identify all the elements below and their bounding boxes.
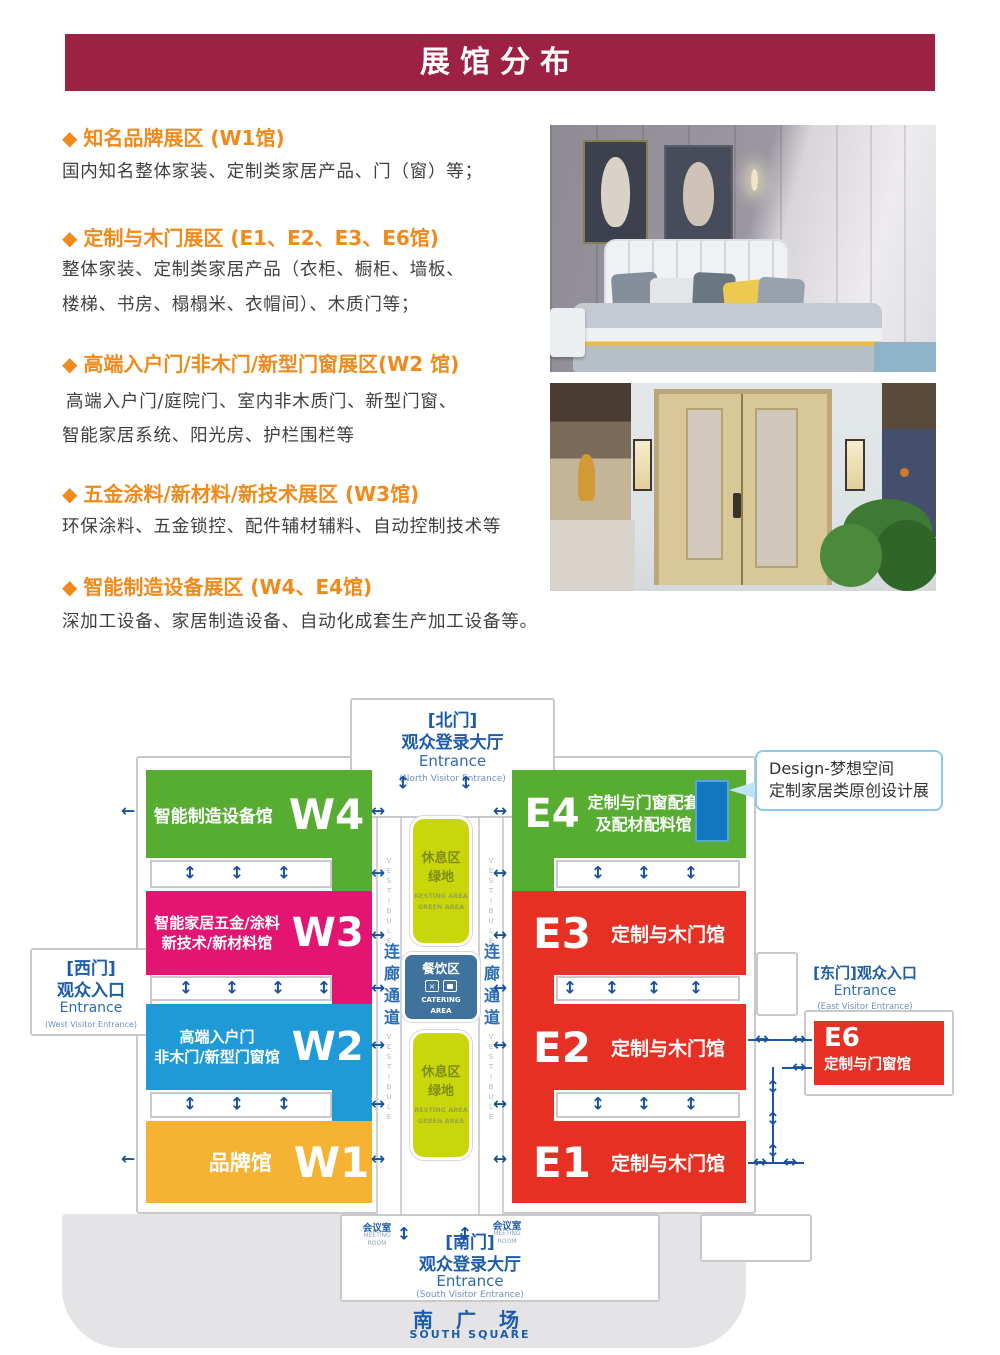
- flow-arrow-icon: ↔: [493, 866, 507, 883]
- hall-e2: E2 定制与木门馆: [512, 1004, 746, 1090]
- south-square-label-en: SOUTH SQUARE: [340, 1328, 600, 1341]
- south-entrance-sub: (South Visitor Entrance): [340, 1290, 600, 1300]
- catering-label-en: AREA: [430, 1006, 451, 1017]
- section-body-line: 整体家装、定制类家居产品（衣柜、橱柜、墙板、: [62, 256, 465, 281]
- west-entrance-label: Entrance: [30, 1000, 152, 1016]
- flow-arrow-icon: ↔: [371, 1152, 385, 1169]
- display-niche: [550, 383, 631, 520]
- flow-arrow-icon: ↕: [637, 1097, 651, 1114]
- section-body-line: 楼梯、书房、榻榻米、衣帽间）、木质门等；: [62, 291, 419, 316]
- vestibule-label: VESTIBULE: [385, 1033, 393, 1123]
- flow-arrow-icon: ↕: [183, 866, 197, 883]
- flow-arrow-icon: ↔: [792, 1032, 806, 1049]
- gold-sculpture: [578, 454, 596, 501]
- hall-name-line: 非木门/新型门窗馆: [154, 1048, 279, 1066]
- floor-plan-map: [北门] 观众登录大厅 Entrance (North Visitor Entr…: [0, 690, 1000, 1355]
- flow-arrow-icon: ↔: [371, 866, 385, 883]
- south-entrance-label: Entrance: [340, 1272, 600, 1290]
- bed-duvet: [573, 303, 882, 372]
- section-heading-text: 智能制造设备展区 (W4、E4馆): [83, 575, 372, 599]
- rest-label-en: GREEN AREA: [418, 1116, 464, 1126]
- diamond-icon: ◆: [62, 126, 77, 150]
- flow-arrow-icon: ↕: [230, 1097, 244, 1114]
- section-heading-w2: ◆高端入户门/非木门/新型门窗展区(W2 馆): [62, 348, 459, 377]
- flow-arrow-icon: ↕: [396, 776, 410, 793]
- catering-label: 餐饮区: [422, 958, 460, 977]
- section-body-line: 国内知名整体家装、定制类家居产品、门（窗）等；: [62, 158, 483, 183]
- section-heading-text: 高端入户门/非木门/新型门窗展区(W2 馆): [83, 352, 459, 376]
- hall-link: [512, 975, 554, 1005]
- rest-label: 休息区: [421, 850, 460, 869]
- flow-arrow-icon: ↕: [591, 1097, 605, 1114]
- page-title: 展馆分布: [420, 45, 580, 80]
- hall-code: E1: [533, 1138, 591, 1187]
- hall-code: E4: [524, 791, 579, 837]
- rest-area-north: 休息区 绿地 RESTING AREA GREEN AREA: [410, 816, 472, 946]
- section-heading-e-halls: ◆定制与木门展区 (E1、E2、E3、E6馆): [62, 222, 439, 251]
- flow-arrow-icon: ↕: [317, 981, 331, 998]
- north-entrance-label: Entrance: [350, 752, 555, 770]
- hall-link: [512, 858, 554, 892]
- flow-arrow-icon: ↕: [179, 981, 193, 998]
- rest-label: 绿地: [428, 869, 454, 888]
- west-entrance-sub: (West Visitor Entrance): [18, 1020, 164, 1029]
- nightstand: [550, 308, 585, 357]
- wall-sconce: [845, 439, 864, 491]
- rest-label-en: RESTING AREA: [414, 1105, 468, 1115]
- utensils-icon: ×: [425, 980, 439, 992]
- east-gate-label: [东门]观众入口: [790, 962, 940, 983]
- section-body-line: 高端入户门/庭院门、室内非木质门、新型门窗、: [66, 388, 457, 413]
- section-heading-w4e4: ◆智能制造设备展区 (W4、E4馆): [62, 571, 372, 600]
- flow-arrow-icon: ↔: [493, 804, 507, 821]
- art-figure: [683, 162, 714, 226]
- hall-name-line: 高端入户门: [180, 1028, 255, 1046]
- hall-name: 智能制造设备馆: [154, 802, 273, 827]
- flow-arrow-icon: ↕: [277, 866, 291, 883]
- pendant-light: [751, 169, 758, 191]
- section-body-line: 智能家居系统、阳光房、护栏围栏等: [62, 422, 355, 447]
- flyer-page: 展馆分布 ◆知名品牌展区 (W1馆) 国内知名整体家装、定制类家居产品、门（窗）…: [0, 0, 1000, 1355]
- catering-label-en: CATERING: [421, 995, 460, 1006]
- hall-code: E2: [533, 1023, 591, 1072]
- hall-name-line: 智能家居五金/涂料: [154, 914, 279, 932]
- vestibule-label: VESTIBULE: [385, 857, 393, 947]
- north-hall-label: 观众登录大厅: [350, 728, 555, 753]
- catering-area: 餐饮区 × CATERING AREA: [402, 952, 480, 1022]
- hall-link: [332, 1090, 372, 1122]
- flow-arrow-icon: ↔: [493, 1038, 507, 1055]
- flow-arrow-icon: ↕: [605, 981, 619, 998]
- bench: [874, 342, 936, 372]
- hall-name: 品牌馆: [209, 1147, 272, 1177]
- meeting-room-structure: [700, 1214, 812, 1262]
- wall-art: [664, 145, 733, 244]
- diamond-icon: ◆: [62, 482, 77, 506]
- hall-name: 定制与木门馆: [611, 1149, 725, 1176]
- door-gap: [741, 394, 743, 585]
- hall-e6: E6 定制与门窗馆: [814, 1021, 944, 1085]
- flow-arrow-icon: ↔: [493, 1097, 507, 1114]
- hall-e3: E3 定制与木门馆: [512, 891, 746, 975]
- flow-arrow-icon: ↔: [493, 1152, 507, 1169]
- flow-arrow-icon: ↕: [684, 1097, 698, 1114]
- hall-w4: 智能制造设备馆 W4: [146, 770, 372, 858]
- rest-area-south: 休息区 绿地 RESTING AREA GREEN AREA: [410, 1030, 472, 1160]
- photo-bedroom: [550, 125, 936, 372]
- callout-line: 定制家居类原创设计展: [769, 780, 929, 802]
- flow-arrow-icon: ↔: [755, 1032, 769, 1049]
- hall-name-line: 新技术/新材料馆: [162, 934, 272, 952]
- flow-arrow-icon: ↔: [371, 1097, 385, 1114]
- diamond-icon: ◆: [62, 352, 77, 376]
- hall-code: W4: [289, 790, 365, 839]
- cup-icon: [443, 980, 457, 992]
- photo-door: [550, 383, 936, 591]
- section-heading-text: 定制与木门展区 (E1、E2、E3、E6馆): [83, 226, 439, 250]
- flow-arrow-icon: ↕: [766, 1080, 780, 1097]
- west-entrance-cn: 观众入口: [30, 976, 152, 1001]
- diamond-icon: ◆: [62, 226, 77, 250]
- section-body-line: 深加工设备、家居制造设备、自动化成套生产加工设备等。: [62, 608, 538, 633]
- door-detail: [900, 468, 909, 477]
- flow-arrow-icon: ↕: [397, 1227, 411, 1244]
- hall-code: W2: [292, 1024, 364, 1070]
- hall-code: E6: [824, 1023, 934, 1053]
- flow-arrow-icon: ↕: [647, 981, 661, 998]
- flow-arrow-icon: ↕: [637, 866, 651, 883]
- hall-name-line: 及配材配料馆: [596, 815, 692, 834]
- door-glass-panel: [755, 408, 799, 568]
- hall-name-line: 定制与门窗配套: [588, 793, 700, 812]
- flow-arrow-icon: ↕: [271, 981, 285, 998]
- page-title-banner: 展馆分布: [65, 34, 935, 91]
- section-heading-text: 五金涂料/新材料/新技术展区 (W3馆): [83, 482, 419, 506]
- hall-w1: 品牌馆 W1: [146, 1121, 372, 1203]
- hall-name: 定制与木门馆: [611, 1034, 725, 1061]
- rest-label-en: RESTING AREA: [414, 891, 468, 901]
- flow-arrow-icon: ↔: [371, 928, 385, 945]
- rest-label: 绿地: [428, 1083, 454, 1102]
- door-lock: [733, 493, 741, 518]
- section-heading-text: 知名品牌展区 (W1馆): [83, 126, 284, 150]
- hall-code: W1: [294, 1138, 370, 1187]
- flow-arrow-icon: ↕: [766, 1144, 780, 1161]
- callout-line: Design-梦想空间: [769, 758, 929, 780]
- half-wall: [550, 520, 635, 591]
- diamond-icon: ◆: [62, 575, 77, 599]
- flow-arrow-icon: ↕: [225, 981, 239, 998]
- flow-arrow-icon: ↔: [792, 1060, 806, 1077]
- flow-arrow-icon: ↕: [277, 1097, 291, 1114]
- rest-label: 休息区: [421, 1064, 460, 1083]
- flow-arrow-icon: ↕: [591, 866, 605, 883]
- entry-door-frame: [654, 389, 832, 585]
- wall-sconce: [633, 439, 652, 491]
- hall-name: 定制与木门馆: [611, 920, 725, 947]
- hall-w3: 智能家居五金/涂料 新技术/新材料馆 W3: [146, 891, 372, 975]
- flow-arrow-icon: ↕: [689, 981, 703, 998]
- flow-arrow-icon: ↕: [183, 1097, 197, 1114]
- wall-art: [583, 140, 649, 244]
- plant: [874, 520, 936, 591]
- corridor: [150, 976, 332, 1001]
- design-zone-marker: [695, 780, 729, 842]
- plant: [820, 524, 882, 586]
- callout-pointer: [729, 782, 755, 798]
- door-glass-panel: [686, 408, 723, 560]
- hall-link: [512, 1090, 554, 1122]
- flow-arrow-icon: ↕: [766, 1112, 780, 1129]
- section-heading-w3: ◆五金涂料/新材料/新技术展区 (W3馆): [62, 478, 419, 507]
- hall-code: W3: [292, 910, 364, 956]
- flow-arrow-icon: ↕: [458, 1227, 472, 1244]
- flow-arrow-icon: ↔: [493, 981, 507, 998]
- hall-code: E3: [533, 909, 591, 958]
- flow-arrow-icon: ↔: [371, 1038, 385, 1055]
- flow-arrow-icon: ↕: [459, 776, 473, 793]
- rest-label-en: GREEN AREA: [418, 902, 464, 912]
- section-body-line: 环保涂料、五金锁控、配件辅材辅料、自动控制技术等: [62, 513, 501, 538]
- hall-e1: E1 定制与木门馆: [512, 1121, 746, 1203]
- hall-w2: 高端入户门 非木门/新型门窗馆 W2: [146, 1004, 372, 1090]
- flow-arrow-icon: ↔: [371, 981, 385, 998]
- flow-arrow-icon: ↕: [684, 866, 698, 883]
- flow-arrow-icon: ↔: [753, 1155, 767, 1172]
- flow-arrow-icon: ↕: [563, 981, 577, 998]
- hall-name: 定制与门窗馆: [824, 1053, 934, 1074]
- design-callout: Design-梦想空间 定制家居类原创设计展: [755, 750, 943, 811]
- exit-arrow-icon: ←: [121, 804, 135, 821]
- flow-arrow-icon: ↕: [230, 866, 244, 883]
- east-entrance-label: Entrance: [790, 983, 940, 999]
- entry-door: [659, 394, 827, 585]
- art-figure: [601, 157, 629, 227]
- section-heading-w1: ◆知名品牌展区 (W1馆): [62, 122, 285, 151]
- flow-arrow-icon: ↔: [371, 804, 385, 821]
- exit-arrow-icon: ←: [121, 1152, 135, 1169]
- flow-arrow-icon: ↔: [493, 928, 507, 945]
- hall-link: [332, 975, 372, 1005]
- hall-link: [332, 858, 372, 892]
- flow-arrow-icon: ↔: [783, 1155, 797, 1172]
